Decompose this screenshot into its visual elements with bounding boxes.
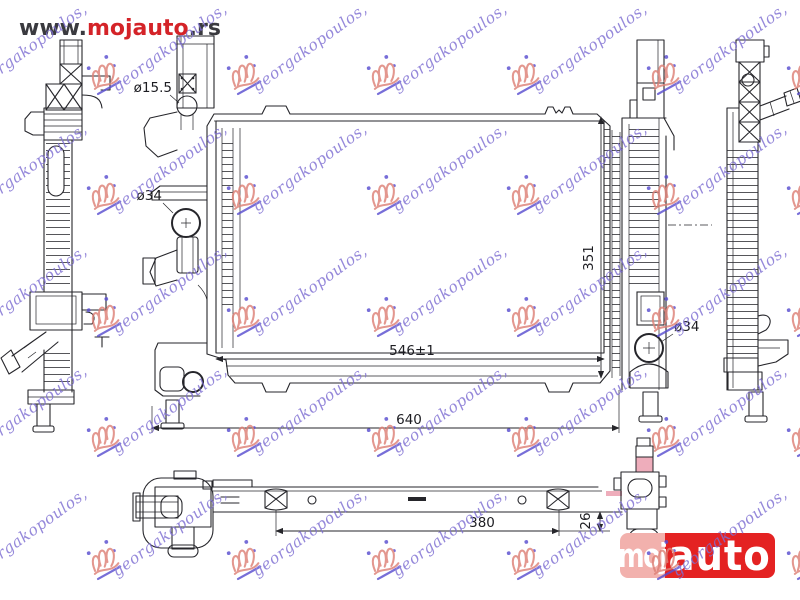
dimension-left-port: ø34 xyxy=(137,188,162,204)
brand-badge-right: auto xyxy=(665,533,775,578)
dimension-core-height: 351 xyxy=(581,245,597,271)
site-url-prefix: www. xyxy=(19,16,87,41)
brand-badge: moj auto xyxy=(620,533,775,578)
highlighted-fitting-block xyxy=(636,457,653,472)
top-port-circle xyxy=(177,96,197,116)
radiator-technical-drawing: 546±1 351 640 ø15.5 ø34 xyxy=(0,0,800,600)
dimension-overall-width: 640 xyxy=(396,412,422,428)
right-side-view-inner: ø34 xyxy=(612,40,712,422)
drain-plug-circle xyxy=(183,372,203,392)
radiator-technical-drawing-page: 546±1 351 640 ø15.5 ø34 xyxy=(0,0,800,600)
highlighted-fitting-strip xyxy=(606,491,622,496)
site-url-brand: mojauto xyxy=(87,16,189,41)
dimension-right-port: ø34 xyxy=(674,319,699,335)
dimension-bar-spacing: 380 xyxy=(469,515,495,531)
dimension-bar-depth: 26 xyxy=(578,512,594,529)
main-front-view: 546±1 351 640 ø15.5 ø34 xyxy=(134,36,619,433)
site-url-suffix: .rs xyxy=(189,16,221,41)
right-side-view-outer xyxy=(724,40,800,422)
brand-badge-right-text: auto xyxy=(669,533,771,578)
bottom-view: 380 26 xyxy=(133,438,666,557)
brand-badge-left-text: moj xyxy=(620,536,667,575)
dimension-top-port: ø15.5 xyxy=(134,80,172,96)
dimension-core-width: 546±1 xyxy=(389,343,435,359)
left-side-view xyxy=(1,40,110,432)
site-url: www.mojauto.rs xyxy=(19,16,221,41)
brand-badge-left: moj xyxy=(620,533,665,578)
